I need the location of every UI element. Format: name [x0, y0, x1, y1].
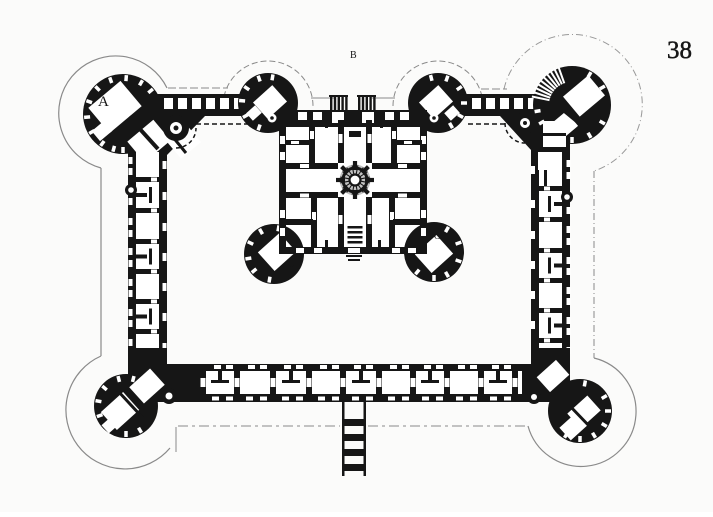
svg-text:B: B: [350, 50, 357, 61]
svg-text:38: 38: [667, 37, 692, 64]
svg-text:C: C: [434, 231, 440, 241]
svg-text:A: A: [98, 94, 109, 110]
svg-text:C: C: [288, 259, 294, 269]
